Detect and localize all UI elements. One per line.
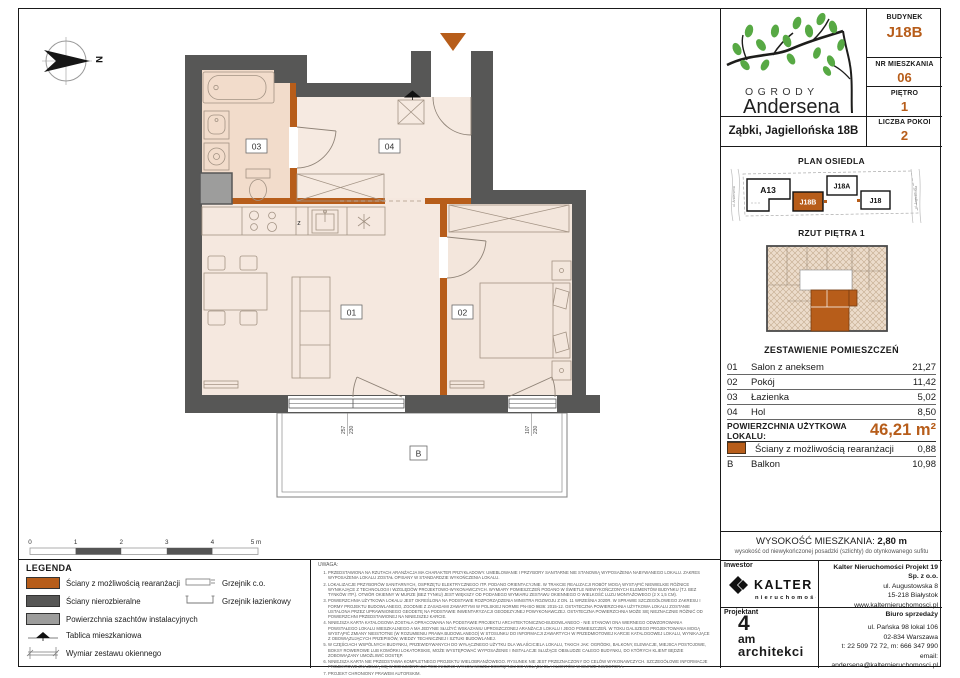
notes-title: UWAGA: [318,562,712,568]
room-area: 8,50 [918,407,937,418]
note-item: NINIEJSZA KARTA NIE PRZEDSTAWIA KOMPLETN… [328,659,712,670]
legend-swatch-structural [26,595,60,607]
room-label-04: 04 [385,142,395,152]
legend-radiator-bath-icon [185,594,217,606]
logo-name-bottom: Andersena [743,96,841,116]
ceiling-height-value: 2,80 m [877,536,907,547]
disclaimer-notes: UWAGA: PRZEDSTAWIONA NA RZUTACH ARANŻACJ… [318,562,712,677]
room-name: Salon z aneksem [751,362,912,373]
bathroom-door-opening [289,127,298,168]
room-no: 01 [727,362,751,373]
site-building-a13 [747,179,790,211]
window-dim-width-1: 257 [341,425,347,434]
north-compass-icon: N [42,37,104,85]
street-right-label: ul. Jagiellońska [914,186,918,209]
rooms-count-label: LICZBA POKOI [867,119,942,126]
ceiling-height: WYSOKOŚĆ MIESZKANIA: 2,80 m [721,536,942,547]
apartment-number-label: NR MIESZKANIA [867,61,942,68]
extra-no: B [727,459,751,470]
room-no: 04 [727,407,751,418]
north-label: N [93,56,104,63]
site-building-a13-label: A13 [760,185,776,195]
scale-4: 4 [211,539,215,546]
note-item: NINIEJSZA KARTA KATALOGOWA ZOSTAŁA OPRAC… [328,620,712,641]
site-building-j18a-label: J18A [834,184,851,191]
logo-leaves [731,11,846,77]
divider [721,531,942,532]
brand-logo: OGRODY Andersena [721,9,866,116]
sales-phone: t: 22 509 72 72, m: 666 347 990 [822,642,938,651]
sales-office: Biuro sprzedaży ul. Pańska 98 lokal 106 … [822,610,938,670]
room-area: 5,02 [918,392,937,403]
legend-item-label: Wymiar zestawu okiennego [66,649,161,658]
room-area: 21,27 [912,362,936,373]
legend-item-label: Powierzchnia szachtów instalacyjnych [66,615,198,624]
site-building-j18b-label: J18B [800,200,817,207]
sales-label: Biuro sprzedaży [822,610,938,619]
ceiling-height-label: WYSOKOŚĆ MIESZKANIA: [756,536,875,547]
table-row: 01 Salon z aneksem 21,27 [727,360,936,375]
scale-3: 3 [165,539,169,546]
divider [867,86,942,87]
note-item: LOKALIZACJE PRZYBORÓW SANITARNYCH, OSPRZ… [328,582,712,598]
bedroom-door-opening [439,237,448,278]
extra-name: Balkon [751,459,912,470]
legend-swatch-rearrangeable [26,577,60,589]
scale-5: 5 m [251,539,262,546]
apartment-card: z 01 02 [0,0,960,678]
kalter-brand-sub: nieruchomości [755,595,816,601]
floor-thumbnail [765,241,890,338]
street-left-label: ul. Andersena [732,186,736,207]
legend-item-label: Ściany nierozbieralne [66,597,141,606]
room-no: 03 [727,392,751,403]
divider [867,57,942,58]
table-row: 04 Hol 8,50 [727,405,936,420]
room-area: 11,42 [913,377,936,388]
scale-0: 0 [28,539,32,546]
legend-radiator-label: Grzejnik łazienkowy [222,597,291,606]
rooms-table: ZESTAWIENIE POMIESZCZEŃ 01 Salon z aneks… [727,345,936,471]
installation-shaft [200,173,232,204]
total-area-value: 46,21 m² [870,421,936,440]
sales-addr2: 02-834 Warszawa [822,633,938,642]
designer-line1: 4 [738,615,804,633]
room-label-02: 02 [458,308,468,318]
table-row: Ściany z możliwością rearanżacji 0,88 [727,442,936,457]
kitchen-sink-label: z [297,220,301,227]
total-area-label: POWIERZCHNIA UŻYTKOWA LOKALU: [727,421,870,441]
note-item: W CZĘŚCIACH WSPÓLNYCH BUDYNKU, PRZEWIDYW… [328,642,712,658]
investor-www: www.kalternieruchomosci.pl [822,601,938,610]
divider [818,560,819,668]
extra-area: 10,98 [912,459,936,470]
window-dim-height-1: 230 [349,425,355,434]
window-dim-height-2: 230 [533,425,539,434]
site-plan-title: PLAN OSIEDLA [721,156,942,166]
divider [18,559,720,560]
room-name: Hol [751,407,918,418]
legend-item-label: Tablica mieszkaniowa [66,631,141,640]
legend-radiator-label: Grzejnik c.o. [222,579,265,588]
table-row: B Balkon 10,98 [727,457,936,471]
kalter-brand: KALTER [754,578,813,592]
investor-addr2: 15-218 Białystok [822,591,938,600]
rooms-count-value: 2 [867,128,942,143]
apartment-number-value: 06 [867,70,942,85]
legend-item-label: Ściany z możliwością rearanżacji [66,579,180,588]
sales-addr1: ul. Pańska 98 lokal 106 [822,623,938,632]
building-label: BUDYNEK [867,14,942,21]
project-address: Ząbki, Jagiellońska 18B [721,117,866,146]
floor-label: PIĘTRO [867,90,942,97]
total-area-row: POWIERZCHNIA UŻYTKOWA LOKALU: 46,21 m² [727,420,936,442]
table-row: 03 Łazienka 5,02 [727,390,936,405]
investor-addr1: ul. Augustowska 8 [822,582,938,591]
legend-window-dim-icon [26,644,60,662]
kalter-logo: KALTER nieruchomości [726,572,816,605]
note-item: POWIERZCHNIA UŻYTKOWA LOKALU JEST OKREŚL… [328,598,712,619]
room-label-01: 01 [347,308,357,318]
divider [310,559,311,668]
window-dim-width-2: 107 [525,425,531,434]
building-value: J18B [867,24,942,41]
site-building-j18-label: J18 [870,198,882,205]
investor-label: Inwestor [724,562,753,569]
legend-board-icon [26,629,60,642]
scale-bar: 0 1 2 3 4 5 m [28,539,261,555]
scale-1: 1 [74,539,78,546]
sales-email: email: andersena@kalternieruchomosci.pl [822,652,938,671]
highlighted-unit [811,290,849,331]
window-dimensions: 257 230 107 230 [341,413,539,436]
floor-plan: z 01 02 [18,8,720,559]
room-name: Łazienka [751,392,918,403]
legend-swatch-shaft [26,613,60,625]
room-label-03: 03 [252,142,262,152]
extra-name: Ściany z możliwością rearanżacji [755,444,918,455]
floor-value: 1 [867,99,942,114]
divider [721,146,942,147]
scale-2: 2 [119,539,123,546]
room-name: Pokój [751,377,913,388]
balcony-label: B [416,449,422,459]
rooms-table-title: ZESTAWIENIE POMIESZCZEŃ [727,345,936,355]
investor-company: Kalter Nieruchomości Projekt 19 Sp. z o.… [822,563,938,582]
note-item: PROJEKT CHRONIONY PRAWEM AUTORSKIM. [328,671,712,676]
extra-area: 0,88 [918,444,937,455]
table-row: 02 Pokój 11,42 [727,375,936,390]
room-no: 02 [727,377,751,388]
investor-address: Kalter Nieruchomości Projekt 19 Sp. z o.… [822,563,938,610]
note-item: PRZEDSTAWIONA NA RZUTACH ARANŻACJA MA CH… [328,570,712,581]
designer-line3: architekci [738,645,804,659]
entry-marker-icon [440,33,466,51]
legend-title: LEGENDA [26,563,72,573]
ceiling-height-note: wysokość od niewykończonej posadzki (szl… [721,549,942,555]
floor-thumb-title: RZUT PIĘTRA 1 [721,228,942,238]
legend-radiator-co-icon [185,576,217,588]
site-plan-map: ul. Andersena ul. Jagiellońska A13 J18B … [721,167,942,225]
divider [721,560,942,561]
designer-logo: 4 am architekci [738,615,804,659]
rearrangeable-wall-swatch [727,442,746,454]
